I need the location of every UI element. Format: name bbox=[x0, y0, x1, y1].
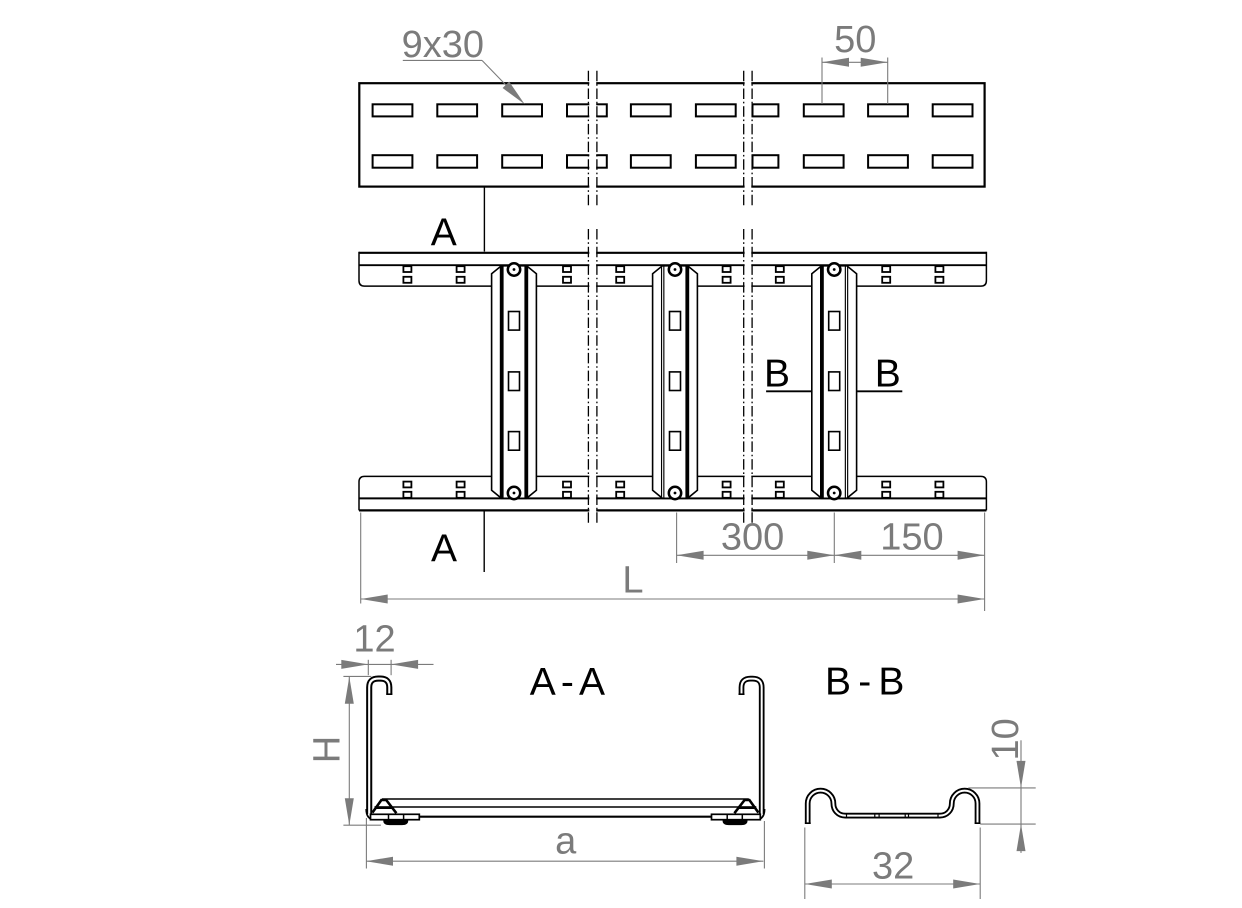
svg-text:300: 300 bbox=[721, 517, 784, 559]
svg-text:32: 32 bbox=[872, 846, 914, 888]
svg-text:A - A: A - A bbox=[530, 661, 605, 704]
svg-text:9x30: 9x30 bbox=[402, 24, 484, 66]
svg-text:10: 10 bbox=[985, 718, 1027, 760]
svg-text:A: A bbox=[431, 211, 457, 254]
svg-text:L: L bbox=[622, 560, 643, 602]
svg-text:B: B bbox=[875, 353, 901, 396]
svg-text:50: 50 bbox=[834, 19, 876, 61]
svg-text:150: 150 bbox=[880, 517, 943, 559]
svg-text:B - B: B - B bbox=[825, 661, 903, 704]
svg-text:H: H bbox=[307, 736, 349, 763]
svg-text:A: A bbox=[431, 527, 457, 570]
svg-text:B: B bbox=[764, 353, 790, 396]
svg-text:12: 12 bbox=[353, 619, 395, 661]
svg-text:a: a bbox=[555, 820, 577, 862]
